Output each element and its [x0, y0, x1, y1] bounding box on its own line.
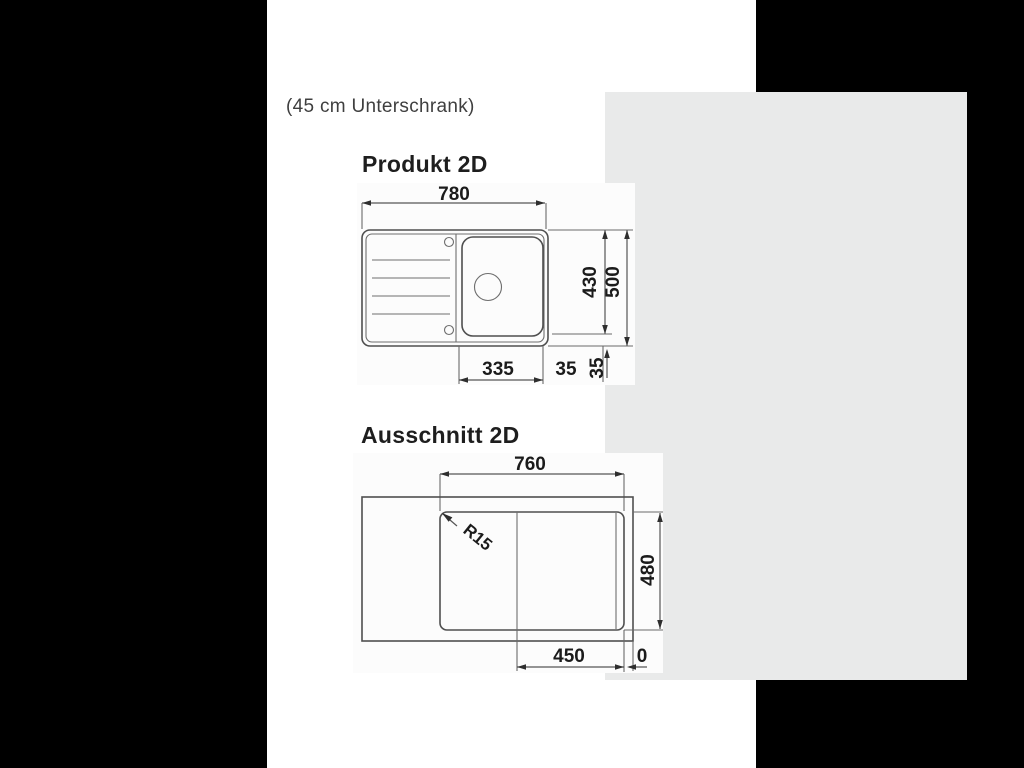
dim-430-label: 430 — [580, 266, 601, 298]
ausschnitt-2d-title: Ausschnitt 2D — [361, 422, 520, 449]
dim-480-arrow-bottom — [657, 620, 663, 629]
tap-hole-top — [445, 238, 454, 247]
dim-760-label: 760 — [514, 454, 546, 475]
dim-450-arrow-right — [615, 664, 624, 670]
produkt-2d-drawing: 780 430 — [357, 183, 635, 385]
dim-35-arrow-up — [604, 349, 610, 358]
sink-rim — [366, 234, 544, 342]
dim-335-arrow-right — [534, 377, 543, 383]
countertop-outline — [362, 497, 633, 641]
dim-35-horizontal-label: 35 — [555, 359, 577, 380]
dim-335-label: 335 — [482, 359, 514, 380]
dim-480-arrow-top — [657, 513, 663, 522]
dim-500-arrow-top — [624, 230, 630, 239]
dim-760-arrow-left — [440, 471, 449, 477]
dim-430-arrow-bottom — [602, 325, 608, 334]
dim-430-arrow-top — [602, 230, 608, 239]
dim-780-arrow-left — [362, 200, 371, 206]
dim-780-arrow-right — [536, 200, 545, 206]
dim-0-label: 0 — [637, 646, 648, 667]
dim-780-label: 780 — [438, 184, 470, 205]
ausschnitt-2d-drawing: 760 R15 480 — [353, 453, 663, 673]
dim-35-vertical-label: 35 — [587, 357, 608, 379]
dim-r15-label: R15 — [460, 520, 496, 554]
ausschnitt-2d-svg: 760 R15 480 — [353, 453, 663, 673]
dim-335-arrow-left — [459, 377, 468, 383]
produkt-2d-svg: 780 430 — [357, 183, 635, 385]
cabinet-size-caption: (45 cm Unterschrank) — [286, 96, 606, 118]
document-sheet: (45 cm Unterschrank) Produkt 2D 780 — [267, 0, 756, 768]
tap-hole-bottom — [445, 326, 454, 335]
sink-outline — [362, 230, 548, 346]
dim-500-arrow-bottom — [624, 337, 630, 346]
dim-500-label: 500 — [603, 266, 624, 298]
dim-480-label: 480 — [638, 554, 659, 586]
dim-450-label: 450 — [553, 646, 585, 667]
dim-450-arrow-left — [517, 664, 526, 670]
drain-circle — [475, 274, 502, 301]
dim-0-arrow — [627, 664, 636, 670]
page: { "colors": { "page_background": "#00000… — [0, 0, 1024, 768]
dim-760-arrow-right — [615, 471, 624, 477]
produkt-2d-title: Produkt 2D — [362, 151, 488, 178]
